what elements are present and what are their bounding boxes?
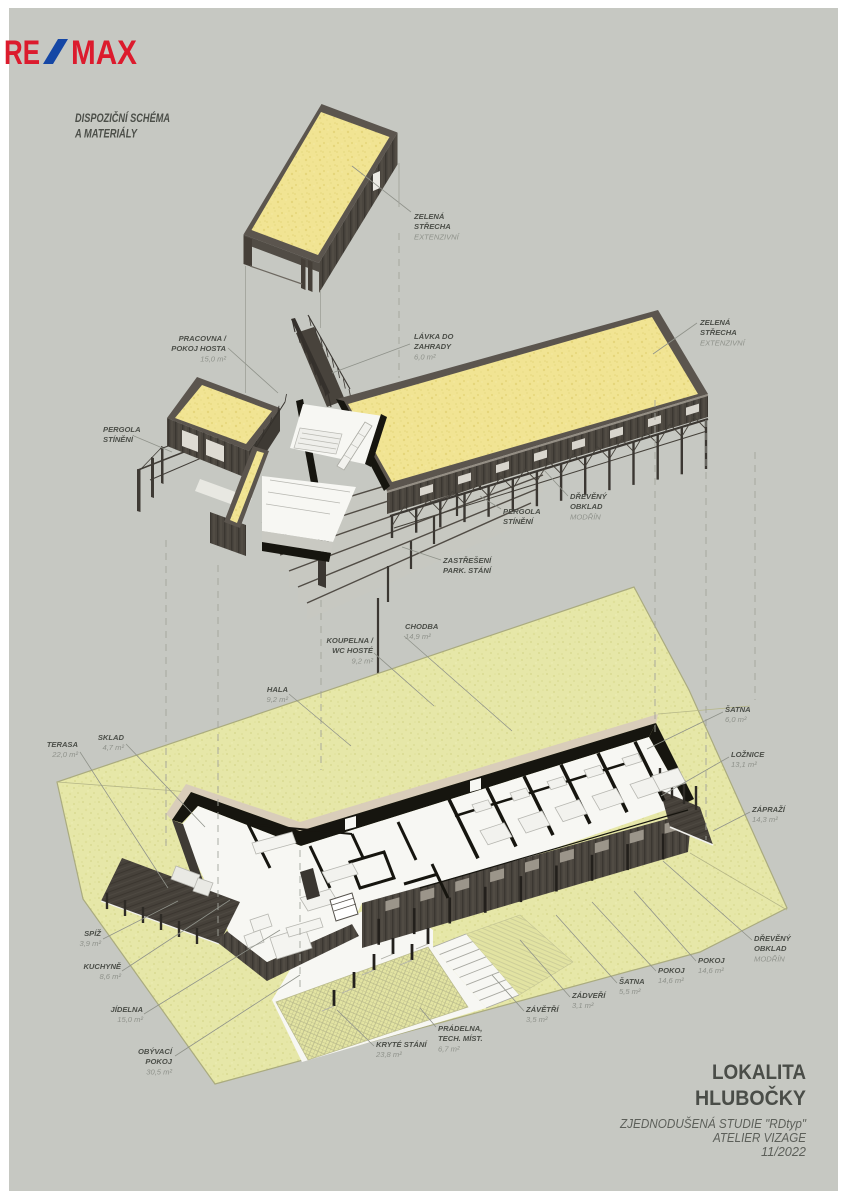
svg-text:POKOJ14,6 m²: POKOJ14,6 m² bbox=[698, 956, 725, 975]
svg-text:POKOJ14,6 m²: POKOJ14,6 m² bbox=[658, 966, 685, 985]
svg-text:HLUBOČKY: HLUBOČKY bbox=[695, 1086, 806, 1110]
svg-text:ZASTŘEŠENÍPARK. STÁNÍ: ZASTŘEŠENÍPARK. STÁNÍ bbox=[442, 556, 493, 575]
svg-text:RE: RE bbox=[4, 34, 40, 72]
svg-text:SKLAD4,7 m²: SKLAD4,7 m² bbox=[98, 733, 125, 752]
svg-text:LOKALITA: LOKALITA bbox=[712, 1061, 806, 1084]
svg-text:11/2022: 11/2022 bbox=[761, 1145, 806, 1159]
svg-text:ATELIER VIZAGE: ATELIER VIZAGE bbox=[712, 1131, 807, 1145]
svg-text:HALA9,2 m²: HALA9,2 m² bbox=[266, 685, 288, 704]
svg-text:TERASA22,0 m²: TERASA22,0 m² bbox=[47, 740, 79, 759]
svg-text:DISPOZIČNÍ SCHÉMA: DISPOZIČNÍ SCHÉMA bbox=[75, 112, 170, 125]
svg-text:ZJEDNODUŠENÁ STUDIE "RDtyp": ZJEDNODUŠENÁ STUDIE "RDtyp" bbox=[619, 1116, 806, 1131]
svg-text:MAX: MAX bbox=[71, 34, 137, 72]
svg-text:A MATERIÁLY: A MATERIÁLY bbox=[74, 128, 138, 141]
